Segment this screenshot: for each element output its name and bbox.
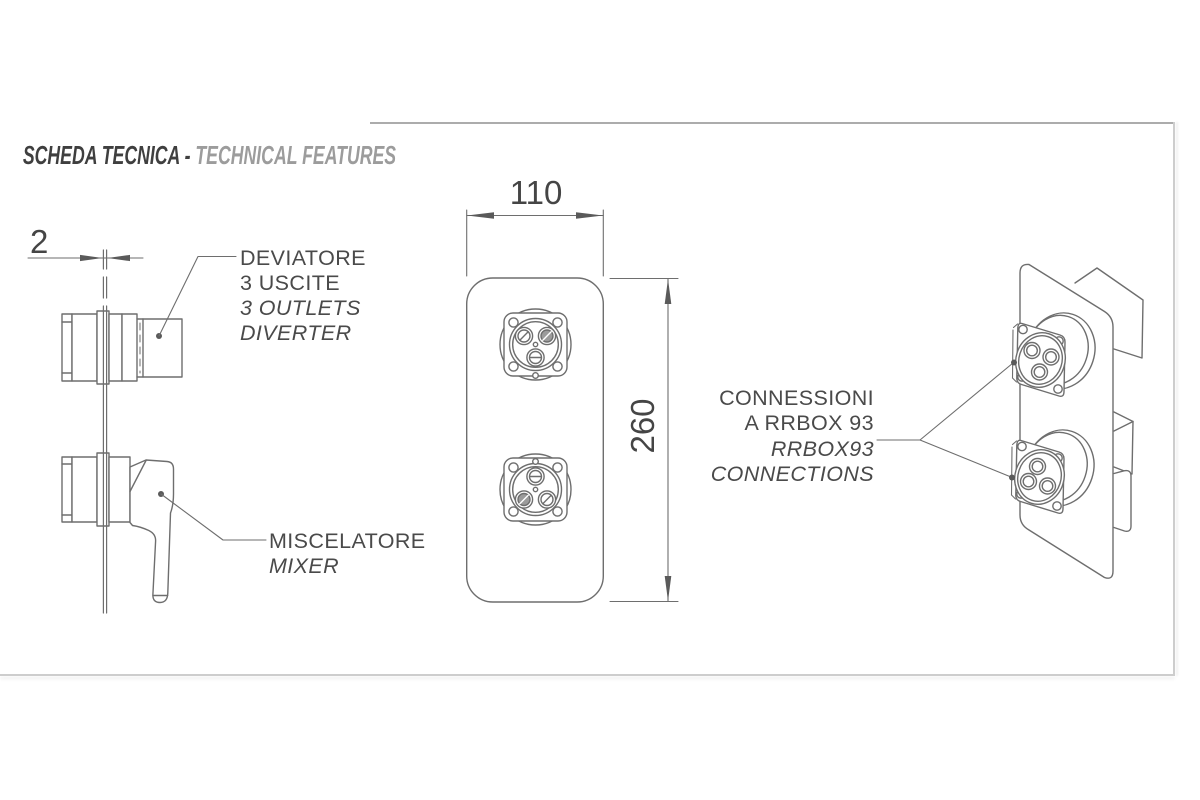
connections-label-line-3: RRBOX93: [690, 437, 874, 462]
diverter-label: DEVIATORE 3 USCITE 3 OUTLETS DIVERTER: [240, 246, 366, 346]
connections-label-line-2: A RRBOX 93: [690, 411, 874, 436]
side-view-drawing: [28, 250, 266, 613]
mixer-lever: [130, 460, 174, 603]
connections-label: CONNESSIONI A RRBOX 93 RRBOX93 CONNECTIO…: [690, 386, 874, 487]
dimension-height-value: 260: [623, 381, 663, 471]
diverter-label-line-2: 3 USCITE: [240, 271, 366, 296]
page: { "header": { "title_primary": "SCHEDA T…: [0, 0, 1200, 800]
width-dimension: [467, 210, 604, 276]
connections-label-line-4: CONNECTIONS: [690, 462, 874, 487]
diverter-label-line-4: DIVERTER: [240, 321, 366, 346]
perspective-view-drawing: [877, 264, 1143, 578]
wall-plate-line: [103, 250, 106, 613]
recessed-box-bottom: [1114, 471, 1131, 532]
diverter-label-line-1: DEVIATORE: [240, 246, 366, 271]
recessed-box-middle: [1114, 412, 1133, 474]
perspective-leaders: [877, 360, 1017, 481]
mixer-label-line-2: MIXER: [269, 554, 426, 579]
diverter-control-front: [500, 309, 571, 380]
dimension-width-value: 110: [503, 176, 569, 209]
mixer-label: MISCELATORE MIXER: [269, 529, 426, 579]
mixer-control-front: [500, 454, 571, 525]
diverter-label-line-3: 3 OUTLETS: [240, 296, 366, 321]
perspective-plate: [1020, 264, 1113, 578]
mixer-label-line-1: MISCELATORE: [269, 529, 426, 554]
mixer-side: [62, 453, 174, 603]
diverter-knob-side: [62, 311, 182, 384]
connections-label-line-1: CONNESSIONI: [690, 386, 874, 411]
technical-drawing: [0, 0, 1200, 800]
dimension-thickness-value: 2: [30, 225, 48, 258]
